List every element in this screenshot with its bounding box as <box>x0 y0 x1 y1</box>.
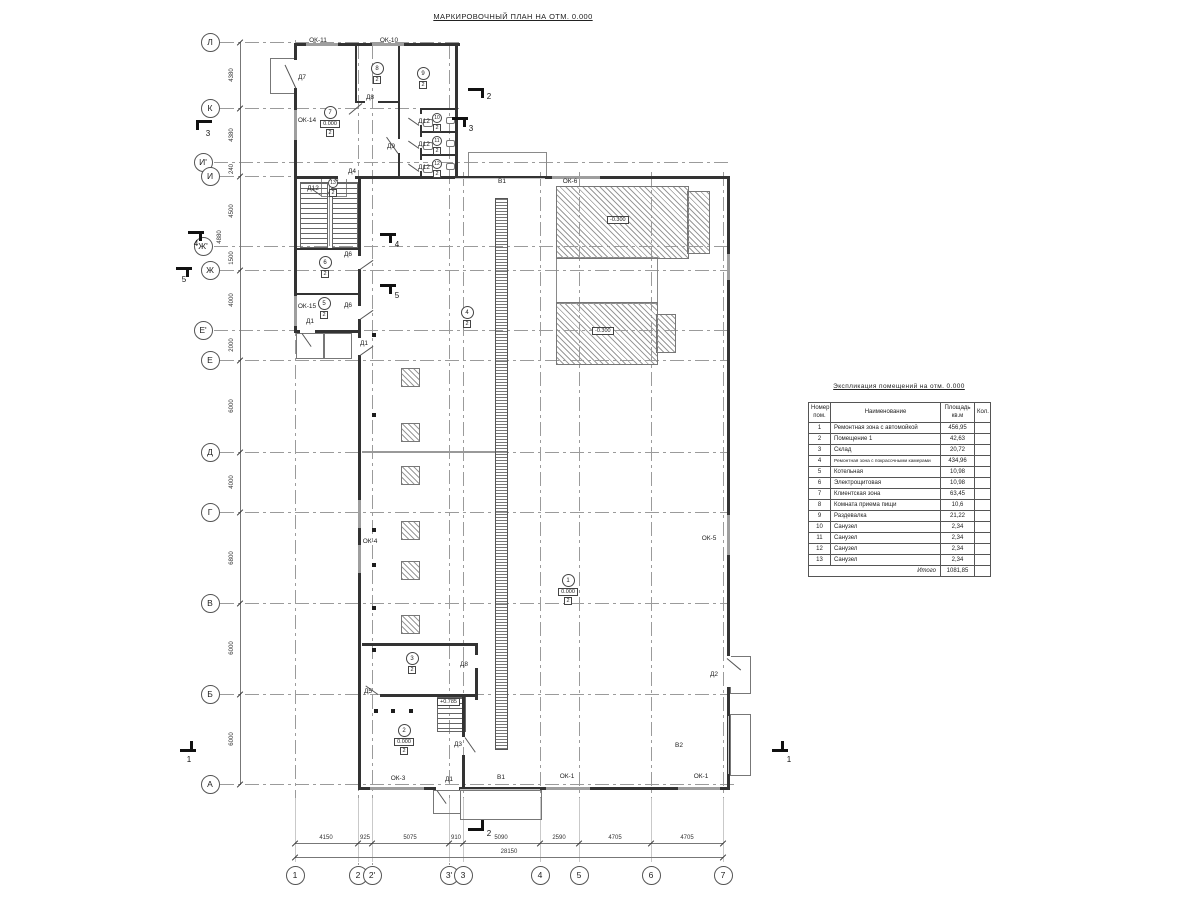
floor-type: 2 <box>463 320 471 328</box>
table-row: 12Санузел2,34 <box>809 544 991 555</box>
wall <box>398 153 400 178</box>
entrance-porch <box>460 790 542 820</box>
floor-type: 2 <box>321 270 329 278</box>
axis-grid-line-h <box>220 784 735 785</box>
window <box>294 110 297 140</box>
column-dot <box>372 606 376 610</box>
extension-line <box>295 798 296 862</box>
hatched-area <box>401 521 420 540</box>
wall <box>437 694 478 697</box>
room-name-cell: Клиентская зона <box>831 489 941 500</box>
plan-label: ОК-3 <box>384 775 412 783</box>
room-name-cell: Склад <box>831 445 941 456</box>
room-num-cell: 4 <box>809 456 831 467</box>
axis-bubble: 2' <box>363 866 382 885</box>
room-elevation: 0.000 <box>320 120 340 128</box>
window <box>358 500 361 528</box>
axis-bubble: И <box>201 167 220 186</box>
wall <box>462 697 465 737</box>
thin-outline <box>556 257 658 304</box>
column-dot <box>372 528 376 532</box>
plan-label: ОК-4 <box>356 538 384 546</box>
section-label: 3 <box>203 129 213 138</box>
floor-plan: ЛКИ'ИЖ'ЖЕ'ЕДГВБА122'3'345674380438024045… <box>0 0 1200 900</box>
extension-line <box>372 798 373 862</box>
room-elevation: 0.000 <box>558 588 578 596</box>
hatched-area <box>656 314 676 353</box>
axis-grid-line-v <box>372 45 373 865</box>
floor-type: 2 <box>373 76 381 84</box>
wall <box>294 293 360 295</box>
section-mark-bar <box>468 828 484 831</box>
room-name-cell: Санузел <box>831 522 941 533</box>
table-row: 10Санузел2,34 <box>809 522 991 533</box>
column-dot <box>372 563 376 567</box>
table-body: 1Ремонтная зона с автомойкой456,952Помещ… <box>809 423 991 577</box>
plan-label: Д1 <box>350 340 378 348</box>
table-header: Номер пом.НаименованиеПлощадь кв.мКол. <box>809 403 991 423</box>
room-name-cell: Котельная <box>831 467 941 478</box>
wall <box>398 45 400 139</box>
room-area-cell: 434,96 <box>941 456 975 467</box>
dimension-text: 925 <box>350 835 380 843</box>
wall <box>420 108 457 110</box>
hatched-area <box>401 368 420 387</box>
room-schedule-table: Номер пом.НаименованиеПлощадь кв.мКол. 1… <box>808 402 991 577</box>
axis-bubble: В <box>201 594 220 613</box>
dimension-text: 4705 <box>600 835 630 843</box>
plan-label: Д12 <box>410 118 438 126</box>
column-dot <box>372 648 376 652</box>
dimension-text: 6000 <box>229 633 237 663</box>
plan-label: Д12 <box>410 141 438 149</box>
plan-label: Д12 <box>299 185 327 193</box>
room-number: 9 <box>417 67 430 80</box>
room-num-cell: 5 <box>809 467 831 478</box>
room-name-cell: Комната приема пищи <box>831 500 941 511</box>
room-name-cell: Санузел <box>831 555 941 566</box>
plan-label: Д6 <box>334 251 362 259</box>
plan-label: ОК-6 <box>556 178 584 186</box>
plan-label: Д12 <box>410 164 438 172</box>
axis-bubble: 7 <box>714 866 733 885</box>
table-header-cell: Площадь кв.м <box>941 403 975 423</box>
window <box>727 515 730 555</box>
floor-type: 2 <box>329 189 337 197</box>
plan-label: ОК-1 <box>687 773 715 781</box>
room-area-cell: 2,34 <box>941 533 975 544</box>
room-name-cell: Раздевалка <box>831 511 941 522</box>
room-qty-cell <box>975 544 991 555</box>
room-number: 4 <box>461 306 474 319</box>
section-mark-bar <box>188 231 204 234</box>
dimension-text: 4380 <box>229 60 237 90</box>
room-num-cell: 9 <box>809 511 831 522</box>
plan-label: В1 <box>487 774 515 782</box>
axis-bubble: 5 <box>570 866 589 885</box>
axis-bubble: Е <box>201 351 220 370</box>
plan-label: Д8 <box>450 661 478 669</box>
axis-grid-line-h <box>220 603 730 604</box>
window <box>358 545 361 573</box>
dimension-text: 1500 <box>229 243 237 273</box>
table-total-row: Итого1081,85 <box>809 566 991 577</box>
axis-grid-line-v <box>540 172 541 865</box>
plan-label: Д8 <box>356 94 384 102</box>
extension-line <box>358 798 359 862</box>
room-num-cell: 10 <box>809 522 831 533</box>
door-opening <box>436 787 459 790</box>
room-qty-cell <box>975 533 991 544</box>
room-qty-cell <box>975 445 991 456</box>
room-name-cell: Ремонтная зона с автомойкой <box>831 423 941 434</box>
room-qty-cell <box>975 555 991 566</box>
extension-line <box>579 798 580 862</box>
extension-line <box>723 798 724 862</box>
dimension-text: 4500 <box>229 196 237 226</box>
dimension-text: 2590 <box>544 835 574 843</box>
room-num-cell: 1 <box>809 423 831 434</box>
dimension-line-total <box>295 857 723 858</box>
axis-grid-line-h <box>220 512 730 513</box>
dimension-text-total: 28150 <box>489 849 529 857</box>
wall <box>475 643 478 655</box>
table-row: 9Раздевалка21,22 <box>809 511 991 522</box>
dimension-text: 2000 <box>229 330 237 360</box>
section-label: 4 <box>191 239 201 248</box>
plan-label: В2 <box>665 742 693 750</box>
plan-label: Д4 <box>338 168 366 176</box>
axis-bubble: 3 <box>454 866 473 885</box>
table-row: 2Помещение 142,63 <box>809 434 991 445</box>
plan-label: Д2 <box>700 671 728 679</box>
room-qty-cell <box>975 511 991 522</box>
floor-type: 2 <box>408 666 416 674</box>
plan-label: ОК-1 <box>553 773 581 781</box>
column-dot <box>372 413 376 417</box>
plan-label: Д7 <box>288 74 316 82</box>
table-row: 6Электрощитовая10,98 <box>809 478 991 489</box>
room-qty-cell <box>975 489 991 500</box>
section-label: 4 <box>392 240 402 249</box>
window <box>546 787 590 790</box>
dimension-line-left <box>240 42 241 784</box>
room-area-cell: 10,98 <box>941 467 975 478</box>
section-mark-bar <box>180 749 196 752</box>
room-qty-cell <box>975 467 991 478</box>
section-label: 5 <box>392 291 402 300</box>
column-dot <box>374 709 378 713</box>
axis-bubble: Д <box>201 443 220 462</box>
floor-type: 2 <box>400 747 408 755</box>
room-num-cell: 6 <box>809 478 831 489</box>
hatched-area <box>401 423 420 442</box>
plan-label: ОК-14 <box>293 117 321 125</box>
entrance-porch <box>730 714 751 776</box>
section-label: 5 <box>179 275 189 284</box>
room-name-cell: Помещение 1 <box>831 434 941 445</box>
hatched-area <box>401 561 420 580</box>
room-area-cell: 10,6 <box>941 500 975 511</box>
table-row: 11Санузел2,34 <box>809 533 991 544</box>
axis-bubble: Г <box>201 503 220 522</box>
gate-opening <box>728 716 730 774</box>
axis-bubble: Е' <box>194 321 213 340</box>
level-mark: -0.300 <box>607 216 629 224</box>
room-qty-cell <box>975 500 991 511</box>
total-label-cell: Итого <box>809 566 941 577</box>
plan-label: Д9 <box>377 143 405 151</box>
plan-label: Д5 <box>354 688 382 696</box>
section-label: 1 <box>784 755 794 764</box>
floor-type: 2 <box>326 129 334 137</box>
plan-label: Д3 <box>444 741 472 749</box>
dimension-text: 910 <box>441 835 471 843</box>
room-area-cell: 10,98 <box>941 478 975 489</box>
room-number: 13 <box>328 178 338 188</box>
dimension-text: 4705 <box>672 835 702 843</box>
column-dot <box>391 709 395 713</box>
plan-label: ОК-10 <box>375 37 403 45</box>
hatched-area <box>687 191 710 254</box>
section-mark-bar <box>380 284 396 287</box>
section-label: 2 <box>484 829 494 838</box>
room-marker: 10.0002 <box>548 574 588 605</box>
hatched-area <box>401 466 420 485</box>
section-mark-arrow <box>190 741 193 749</box>
axis-bubble: 1 <box>286 866 305 885</box>
room-num-cell: 3 <box>809 445 831 456</box>
plan-label: ОК-15 <box>293 303 321 311</box>
room-number: 2 <box>398 724 411 737</box>
entrance-porch <box>730 656 751 694</box>
column-dot <box>372 333 376 337</box>
table-row: 1Ремонтная зона с автомойкой456,95 <box>809 423 991 434</box>
table-row: 4Ремонтная зона с покрасочными камерами4… <box>809 456 991 467</box>
table-row: 3Склад20,72 <box>809 445 991 456</box>
wall <box>362 643 478 646</box>
axis-bubble: Б <box>201 685 220 704</box>
room-elevation: 0.000 <box>394 738 414 746</box>
entrance-porch <box>324 333 352 359</box>
floor-type: 2 <box>419 81 427 89</box>
section-label: 2 <box>484 92 494 101</box>
room-qty-cell <box>975 478 991 489</box>
axis-bubble: 4 <box>531 866 550 885</box>
dimension-text: 240 <box>229 154 237 184</box>
table-row: 8Комната приема пищи10,6 <box>809 500 991 511</box>
floor-type: 2 <box>564 597 572 605</box>
dimension-text: 4880 <box>217 222 225 252</box>
plan-label: ОК-11 <box>304 37 332 45</box>
room-name-cell: Ремонтная зона с покрасочными камерами <box>831 456 941 467</box>
dimension-text: 4380 <box>229 120 237 150</box>
room-area-cell: 456,95 <box>941 423 975 434</box>
room-qty-cell <box>975 456 991 467</box>
section-mark-arrow <box>781 741 784 749</box>
section-label: 3 <box>466 124 476 133</box>
room-area-cell: 42,63 <box>941 434 975 445</box>
axis-bubble: 6 <box>642 866 661 885</box>
section-mark-arrow <box>196 122 199 130</box>
drawing-canvas: МАРКИРОВОЧНЫЙ ПЛАН НА ОТМ. 0.000 ЛКИ'ИЖ'… <box>0 0 1200 900</box>
table-title: Экспликация помещений на отм. 0.000 <box>800 383 998 390</box>
table-row: 7Клиентская зона63,45 <box>809 489 991 500</box>
room-marker: 62 <box>305 256 345 278</box>
room-num-cell: 7 <box>809 489 831 500</box>
room-marker: 32 <box>392 652 432 674</box>
room-marker: 92 <box>403 67 443 89</box>
dimension-text: 5075 <box>395 835 425 843</box>
extension-line <box>651 798 652 862</box>
room-name-cell: Санузел <box>831 533 941 544</box>
axis-bubble: Л <box>201 33 220 52</box>
axis-grid-line-v <box>723 172 724 865</box>
room-number: 3 <box>406 652 419 665</box>
thin-outline <box>468 152 547 178</box>
room-num-cell: 2 <box>809 434 831 445</box>
section-mark-arrow <box>481 820 484 828</box>
room-number: 1 <box>562 574 575 587</box>
wall <box>294 248 360 250</box>
room-marker: 20.0002 <box>384 724 424 755</box>
entrance-porch <box>433 790 461 814</box>
section-label: 1 <box>184 755 194 764</box>
room-area-cell: 20,72 <box>941 445 975 456</box>
dimension-text: 4000 <box>229 285 237 315</box>
partition-line <box>362 451 495 453</box>
room-name-cell: Санузел <box>831 544 941 555</box>
level-mark: -0.300 <box>592 327 614 335</box>
room-qty-cell <box>975 522 991 533</box>
room-num-cell: 12 <box>809 544 831 555</box>
section-mark-bar <box>452 117 468 120</box>
window <box>727 254 730 280</box>
room-number: 8 <box>371 62 384 75</box>
room-area-cell: 63,45 <box>941 489 975 500</box>
plan-label: ОК-5 <box>695 535 723 543</box>
room-name-cell: Электрощитовая <box>831 478 941 489</box>
total-qty-cell <box>975 566 991 577</box>
section-mark-bar <box>772 749 788 752</box>
dimension-text: 6800 <box>229 543 237 573</box>
room-num-cell: 13 <box>809 555 831 566</box>
room-number: 6 <box>319 256 332 269</box>
room-marker: 82 <box>357 62 397 84</box>
dimension-text: 4150 <box>311 835 341 843</box>
table-header-cell: Наименование <box>831 403 941 423</box>
room-num-cell: 11 <box>809 533 831 544</box>
gate-opening <box>460 789 540 791</box>
room-area-cell: 2,34 <box>941 555 975 566</box>
section-mark-bar <box>176 267 192 270</box>
window <box>370 787 424 790</box>
dimension-text: 4000 <box>229 467 237 497</box>
plan-label: В1 <box>488 178 516 186</box>
axis-bubble: К <box>201 99 220 118</box>
table-header-cell: Кол. <box>975 403 991 423</box>
room-area-cell: 21,22 <box>941 511 975 522</box>
axis-bubble: Ж <box>201 261 220 280</box>
room-marker: 42 <box>447 306 487 328</box>
room-num-cell: 8 <box>809 500 831 511</box>
wall <box>380 694 438 697</box>
axis-bubble: А <box>201 775 220 794</box>
room-area-cell: 2,34 <box>941 544 975 555</box>
level-mark: +0.785 <box>437 698 460 706</box>
room-number: 7 <box>324 106 337 119</box>
dimension-text: 6000 <box>229 724 237 754</box>
dimension-line-bottom <box>295 843 723 844</box>
dimension-text: 6000 <box>229 391 237 421</box>
inspection-trench <box>495 198 508 750</box>
room-qty-cell <box>975 423 991 434</box>
window <box>678 787 720 790</box>
plan-label: Д6 <box>334 302 362 310</box>
room-qty-cell <box>975 434 991 445</box>
table-row: 5Котельная10,98 <box>809 467 991 478</box>
column-dot <box>409 709 413 713</box>
plan-label: Д1 <box>296 318 324 326</box>
table-row: 13Санузел2,34 <box>809 555 991 566</box>
total-value-cell: 1081,85 <box>941 566 975 577</box>
table-header-cell: Номер пом. <box>809 403 831 423</box>
section-mark-bar <box>380 233 396 236</box>
room-area-cell: 2,34 <box>941 522 975 533</box>
hatched-area <box>401 615 420 634</box>
wall <box>462 755 465 790</box>
plan-label: Д1 <box>435 776 463 784</box>
